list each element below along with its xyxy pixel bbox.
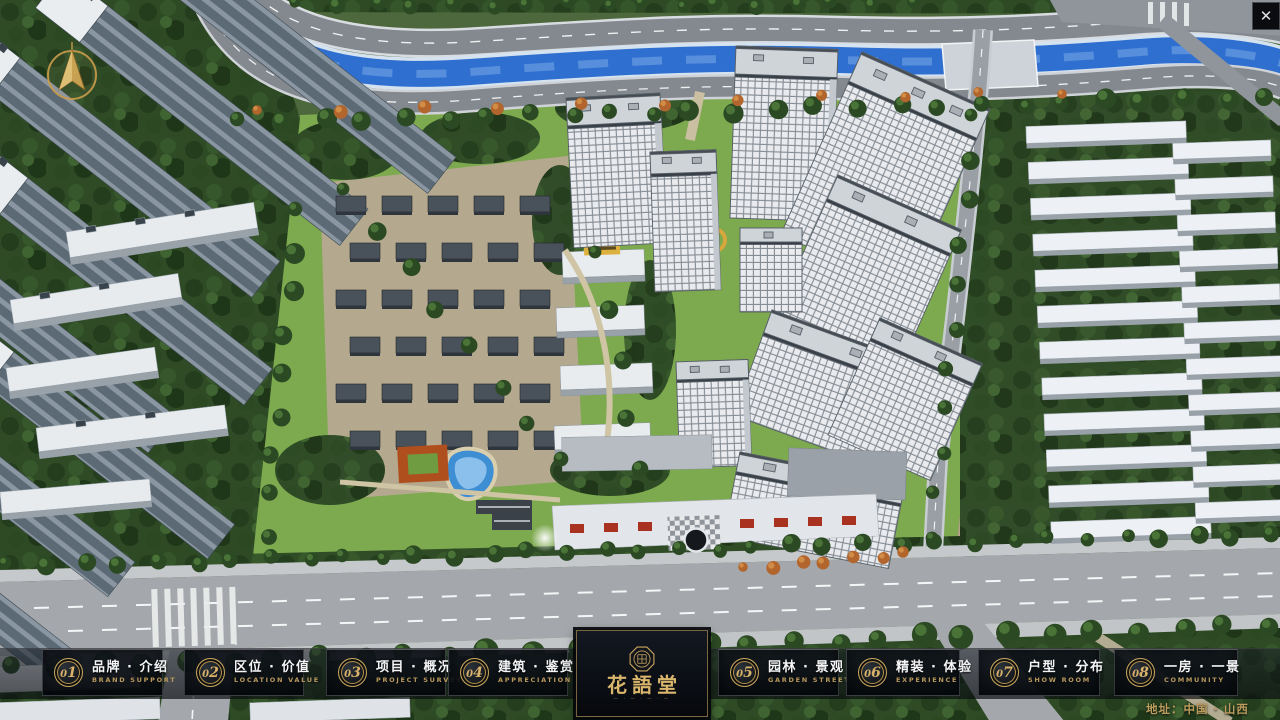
menu-item-subtitle: GARDEN STREET <box>768 677 850 684</box>
compass-icon <box>42 42 102 104</box>
project-logo-panel[interactable]: 花語堂 — · — · — · — <box>576 630 708 717</box>
menu-number-badge: 02 <box>196 658 225 687</box>
menu-item-interior-experience[interactable]: 06 精装 · 体验 EXPERIENCE <box>846 649 960 696</box>
menu-number-badge: 05 <box>730 658 759 687</box>
menu-number-badge: 06 <box>858 658 887 687</box>
menu-item-project-overview[interactable]: 03 项目 · 概况 PROJECT SURVEY <box>326 649 446 696</box>
menu-item-subtitle: BRAND SUPPORT <box>92 677 176 684</box>
project-address: 地址：中国 · 山西 <box>1146 701 1262 717</box>
menu-item-label: 品牌 · 介绍 <box>92 661 176 675</box>
menu-item-landscape[interactable]: 05 园林 · 景观 GARDEN STREET <box>718 649 839 696</box>
menu-item-label: 园林 · 景观 <box>768 661 850 675</box>
menu-item-label: 精装 · 体验 <box>896 661 973 675</box>
menu-number-badge: 01 <box>54 658 83 687</box>
masterplan-3d-view[interactable] <box>0 0 1280 720</box>
menu-item-architecture[interactable]: 04 建筑 · 鉴赏 APPRECIATION <box>448 649 568 696</box>
menu-item-subtitle: SHOW ROOM <box>1028 677 1105 684</box>
menu-number-badge: 03 <box>338 658 367 687</box>
menu-item-subtitle: LOCATION VALUE <box>234 677 320 684</box>
project-logo-title: 花語堂 <box>602 675 682 695</box>
menu-item-brand-intro[interactable]: 01 品牌 · 介绍 BRAND SUPPORT <box>42 649 163 696</box>
menu-item-label: 区位 · 价值 <box>234 661 320 675</box>
logo-seal-icon <box>628 645 656 673</box>
close-button[interactable]: ✕ <box>1252 2 1280 30</box>
presentation-window: ✕ 01 品牌 · 介绍 BRAND SUPPORT 02 区位 · 价值 LO… <box>0 0 1280 720</box>
menu-item-location-value[interactable]: 02 区位 · 价值 LOCATION VALUE <box>184 649 304 696</box>
menu-item-one-room-one-view[interactable]: 08 一房 · 一景 COMMUNITY <box>1114 649 1238 696</box>
menu-item-subtitle: COMMUNITY <box>1164 677 1241 684</box>
menu-item-label: 户型 · 分布 <box>1028 661 1105 675</box>
menu-number-badge: 04 <box>460 658 489 687</box>
menu-item-floorplan-distribution[interactable]: 07 户型 · 分布 SHOW ROOM <box>978 649 1100 696</box>
menu-item-subtitle: EXPERIENCE <box>896 677 973 684</box>
menu-number-badge: 08 <box>1126 658 1155 687</box>
menu-item-label: 建筑 · 鉴赏 <box>498 661 575 675</box>
project-logo-tagline: — · — · — · — <box>614 697 671 702</box>
menu-item-subtitle: APPRECIATION <box>498 677 575 684</box>
menu-item-label: 一房 · 一景 <box>1164 661 1241 675</box>
menu-number-badge: 07 <box>990 658 1019 687</box>
